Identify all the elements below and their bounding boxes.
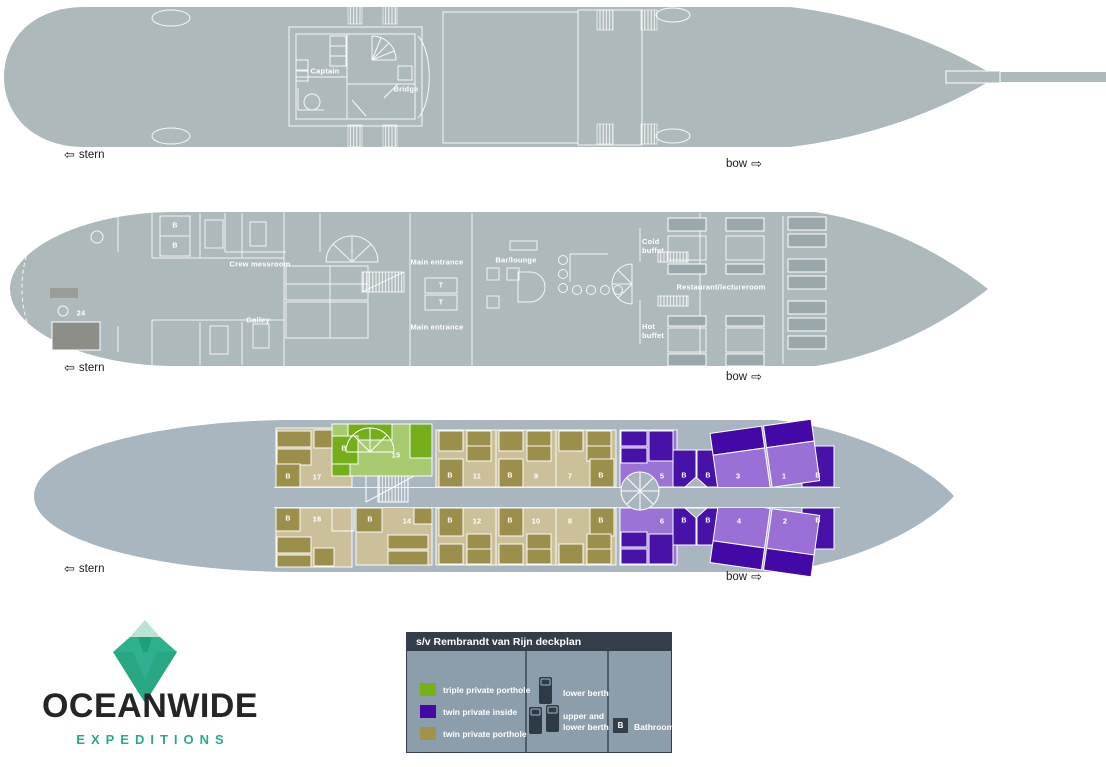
direction-stern: ⇦ stern [64,148,104,161]
room-label-galley: Galley [246,316,270,324]
cabin-8-label: 8 [568,517,572,525]
cabin-2-label: 2 [783,517,787,525]
upper-lower-berth-icon [527,703,563,737]
main-deck-hull [10,212,988,366]
cabin-17-label: 17 [313,473,322,481]
bathroom-legend-icon: B [613,718,628,733]
bathroom-label: B [507,473,512,480]
cabin-7-label: 7 [568,472,572,480]
upper-deck-drawing [0,0,1106,200]
cabin-24-label: 24 [77,309,86,317]
bathroom-label: B [815,518,820,525]
legend-panel: s/v Rembrandt van Rijn deckplan triple p… [406,632,672,753]
legend-item-triple-porthole: triple private porthole [420,683,530,696]
cabin-3-label: 3 [736,472,740,480]
room-label-captain: Captain [311,67,340,75]
cabin-10-label: 10 [532,517,541,525]
deckplan-page: Captain Bridge ⇦ stern bow ⇨ B B 24 Crew… [0,0,1106,767]
direction-stern: ⇦ stern [64,361,104,374]
cabin-6-label: 6 [660,517,664,525]
room-label-main-entrance-bottom: Main entrance [410,323,463,331]
triple-porthole-swatch [420,683,436,696]
bathroom-label: B [285,474,290,481]
room-label-cold-buffet: Cold buffet [642,237,674,255]
bathroom-label: B [285,516,290,523]
cabin-deck-drawing [0,400,1106,600]
stairs [362,272,404,292]
bathroom-label: B [681,473,686,480]
bathroom-label: B [172,243,177,250]
cabin-15-label: 15 [392,451,401,459]
direction-stern: ⇦ stern [64,562,104,575]
bathroom-label: B [172,223,177,230]
cabin-4-label: 4 [737,517,741,525]
cabin-18-label: 18 [313,515,322,523]
cabin-14-label: 14 [403,517,412,525]
legend-item-twin-porthole: twin private porthole [420,727,527,740]
room-label-main-entrance-top: Main entrance [410,258,463,266]
direction-bow: bow ⇨ [726,157,762,170]
bow-arrow-icon: ⇨ [751,370,762,383]
bathroom-legend-label: Bathroom [634,722,674,733]
corridor [274,487,840,508]
bathroom-label: B [447,518,452,525]
bow-arrow-icon: ⇨ [751,157,762,170]
crew-bunk [50,288,78,298]
legend-title: s/v Rembrandt van Rijn deckplan [407,633,671,651]
bathroom-label: B [705,518,710,525]
upper-deck-hull [4,7,1106,147]
legend-item-twin-inside: twin private inside [420,705,517,718]
logo-wordmark: OCEANWIDE [18,689,282,723]
bow-arrow-icon: ⇨ [751,570,762,583]
twin-porthole-swatch [420,727,436,740]
room-label-hot-buffet: Hot buffet [642,322,674,340]
table-label: T [439,300,443,307]
stern-arrow-icon: ⇦ [64,148,75,161]
bowsprit [998,72,1106,82]
upper-lower-berth-label: upper and lower berth [563,711,613,732]
room-label-restaurant: Restaurant/lectureroom [676,283,765,291]
bathroom-label: B [815,473,820,480]
buffet-counter [658,296,688,306]
bathroom-label: B [447,473,452,480]
cabin-11-label: 11 [473,472,481,480]
logo-tagline: EXPEDITIONS [24,733,282,746]
cabin-5-label: 5 [660,472,664,480]
room-label-crew-messroom: Crew messroom [230,260,291,268]
stairs [378,476,408,502]
bathroom-label: B [598,518,603,525]
bathroom-label: B [705,473,710,480]
direction-bow: bow ⇨ [726,370,762,383]
direction-bow: bow ⇨ [726,570,762,583]
main-deck-drawing [0,200,1106,400]
twin-inside-swatch [420,705,436,718]
bathroom-label: B [598,473,603,480]
cabin-9-label: 9 [534,472,538,480]
table-label: T [439,283,443,290]
stern-arrow-icon: ⇦ [64,562,75,575]
crew-bunk [52,322,100,350]
bathroom-label: B [681,518,686,525]
cabin-12-label: 12 [473,517,482,525]
bathroom-label: B [507,518,512,525]
room-label-bar-lounge: Bar/lounge [495,256,536,264]
lower-berth-label: lower berth [563,688,609,699]
legend-divider [607,651,609,752]
stern-arrow-icon: ⇦ [64,361,75,374]
bathroom-label: B [341,446,346,453]
room-label-bridge: Bridge [394,85,419,93]
bathroom-label: B [367,517,372,524]
cabin-1-label: 1 [782,472,786,480]
